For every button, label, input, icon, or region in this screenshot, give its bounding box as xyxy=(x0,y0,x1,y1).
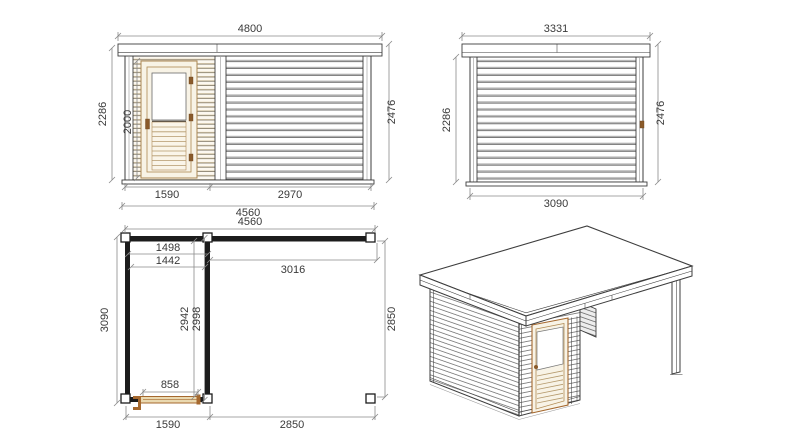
plan-door-hinge xyxy=(197,395,201,405)
technical-drawing-page: 4800 2286 2000 2476 1590 2970 4560 3331 … xyxy=(0,0,794,446)
front-door-hinge-middle xyxy=(189,114,193,121)
plan-left-wall xyxy=(125,236,130,402)
dim-plan-room-width-b: 1442 xyxy=(156,255,180,267)
dim-side-height-left-line xyxy=(453,54,459,185)
dim-plan-door-opening: 858 xyxy=(161,379,179,391)
side-roof-band xyxy=(462,44,650,57)
technical-drawing-canvas: 4800 2286 2000 2476 1590 2970 4560 3331 … xyxy=(0,0,794,446)
iso-door-handle xyxy=(534,365,538,369)
dim-front-height-left-line xyxy=(109,45,115,183)
plan-post-top-left xyxy=(121,233,130,242)
front-door-handle xyxy=(146,119,150,129)
dim-plan-side-depth-line xyxy=(114,234,120,406)
dim-plan-canopy-inner-width-line xyxy=(207,243,380,263)
dim-front-height-right: 2476 xyxy=(386,100,398,124)
front-base-strip xyxy=(122,180,374,184)
plan-post-bottom-left xyxy=(121,394,130,403)
front-door xyxy=(141,61,197,178)
plan-door xyxy=(133,395,201,411)
isometric-view xyxy=(420,226,692,420)
front-door-window xyxy=(152,73,186,120)
front-roof-band xyxy=(118,44,382,56)
plan-top-beam xyxy=(125,236,375,242)
dim-front-height-left: 2286 xyxy=(97,102,109,126)
front-elevation-view: 4800 2286 2000 2476 1590 2970 4560 xyxy=(97,23,398,219)
plan-post-top-right xyxy=(366,233,375,242)
front-main-section-siding xyxy=(226,56,363,180)
dim-plan-canopy-inner-width: 3016 xyxy=(281,264,305,276)
dim-side-height-left: 2286 xyxy=(441,108,453,132)
dim-plan-overall-width: 4560 xyxy=(238,216,262,228)
dim-side-base-width: 3090 xyxy=(544,198,568,210)
dim-plan-room-outer-width: 1590 xyxy=(156,419,180,431)
iso-canopy-post xyxy=(670,275,683,375)
iso-door xyxy=(532,318,568,413)
side-base-strip xyxy=(466,182,647,186)
dim-plan-room-depth-b: 2998 xyxy=(191,307,203,331)
dim-plan-bottom-line xyxy=(123,406,378,420)
dim-plan-room-depth-a: 2942 xyxy=(179,307,191,331)
side-wall-siding xyxy=(470,57,643,182)
front-door-hinge-top xyxy=(189,77,193,84)
iso-door-window xyxy=(537,327,563,370)
dim-front-overall-width: 4800 xyxy=(238,23,262,35)
dim-plan-side-depth: 3090 xyxy=(99,308,111,332)
dim-plan-canopy-depth: 2850 xyxy=(386,307,398,331)
dim-front-door-section-width: 1590 xyxy=(155,189,179,201)
side-elevation-view: 3331 2286 2476 3090 xyxy=(441,23,667,210)
dim-plan-canopy-outer-width: 2850 xyxy=(280,419,304,431)
plan-post-canopy xyxy=(366,394,375,403)
dim-plan-room-width-a: 1498 xyxy=(156,242,180,254)
side-door-handle-edge xyxy=(640,121,644,128)
dim-side-height-right: 2476 xyxy=(655,101,667,125)
floor-plan-view: 4560 1498 1442 3016 3090 2942 2998 2850 … xyxy=(99,216,398,431)
dim-front-door-height: 2000 xyxy=(122,110,134,134)
front-door-hinge-bottom xyxy=(189,154,193,161)
dim-front-main-section-width: 2970 xyxy=(278,189,302,201)
dim-side-roof-width: 3331 xyxy=(544,23,568,35)
